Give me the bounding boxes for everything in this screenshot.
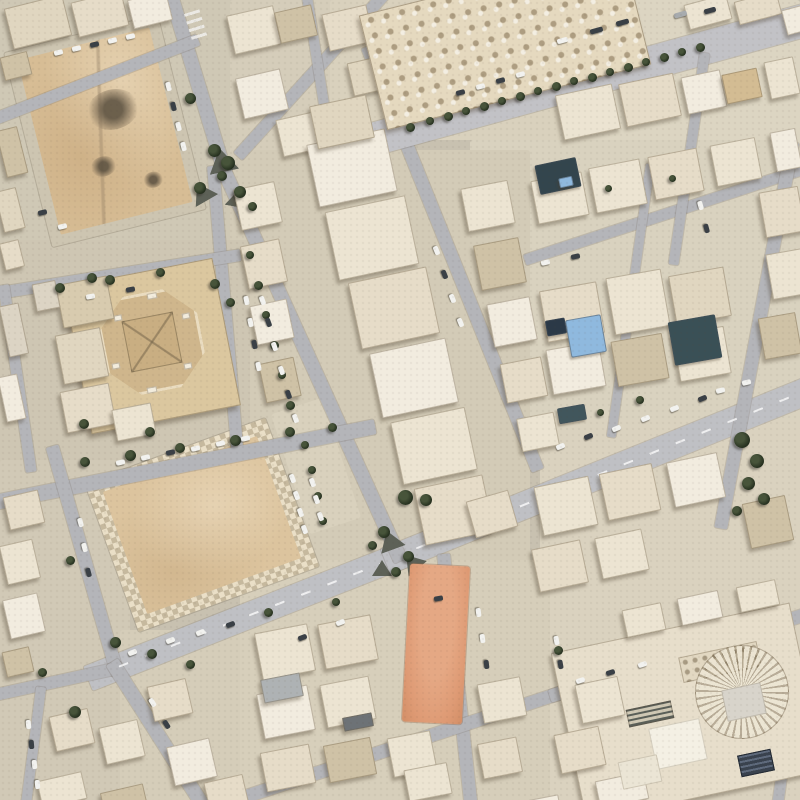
- tree: [248, 202, 257, 211]
- tree: [732, 506, 742, 516]
- tree: [642, 58, 650, 66]
- tree: [145, 427, 155, 437]
- tree: [734, 432, 750, 448]
- tree: [588, 73, 597, 82]
- tree: [156, 268, 165, 277]
- tree: [79, 419, 89, 429]
- tree: [554, 646, 563, 655]
- tree: [210, 279, 220, 289]
- building: [758, 312, 800, 360]
- tree: [55, 283, 65, 293]
- building: [605, 269, 670, 336]
- tree: [185, 93, 196, 104]
- tree: [147, 649, 157, 659]
- car: [190, 445, 200, 452]
- disturbed-soil-patch: [142, 170, 165, 190]
- tree: [480, 102, 489, 111]
- tree: [226, 298, 235, 307]
- car: [570, 253, 580, 260]
- car: [25, 719, 31, 728]
- tree: [87, 273, 97, 283]
- building: [680, 69, 727, 114]
- tree: [678, 48, 686, 56]
- tree: [308, 466, 316, 474]
- building: [55, 327, 110, 385]
- building: [758, 186, 800, 238]
- tree: [552, 82, 561, 91]
- tree: [328, 423, 337, 432]
- building: [473, 237, 527, 291]
- car: [483, 659, 489, 669]
- tree: [597, 409, 604, 416]
- tree: [286, 401, 295, 410]
- car: [255, 361, 262, 371]
- car: [215, 440, 225, 447]
- tree: [669, 175, 676, 182]
- tree: [758, 493, 770, 505]
- building: [477, 676, 528, 724]
- tree: [105, 275, 115, 285]
- tree: [391, 567, 401, 577]
- disturbed-soil-patch: [83, 84, 143, 135]
- tree: [208, 144, 221, 157]
- tree: [254, 281, 263, 290]
- building: [610, 333, 669, 387]
- car: [34, 779, 40, 788]
- tree: [606, 68, 614, 76]
- building: [709, 137, 762, 187]
- car: [251, 339, 258, 349]
- tree: [186, 660, 195, 669]
- swimming-pool: [668, 314, 723, 366]
- tree: [301, 441, 309, 449]
- tree: [125, 450, 136, 461]
- tree: [217, 171, 227, 181]
- tree: [742, 477, 755, 490]
- tree: [660, 53, 669, 62]
- building: [647, 148, 704, 201]
- building: [477, 737, 523, 780]
- car: [433, 595, 443, 601]
- tree: [110, 637, 121, 648]
- tree: [285, 427, 295, 437]
- satellite-map-view: [0, 0, 800, 800]
- tree: [66, 556, 75, 565]
- building: [516, 412, 560, 453]
- tree: [624, 63, 633, 72]
- tree: [175, 443, 185, 453]
- tree: [534, 87, 542, 95]
- car: [479, 633, 485, 643]
- tree: [246, 251, 254, 259]
- tree: [605, 185, 612, 192]
- tree: [221, 156, 235, 170]
- swimming-pool: [565, 314, 607, 358]
- tree: [750, 454, 764, 468]
- car: [540, 259, 550, 266]
- tree: [516, 92, 525, 101]
- tree: [194, 182, 206, 194]
- car: [140, 454, 150, 461]
- tree: [80, 457, 90, 467]
- tree: [420, 494, 432, 506]
- car: [553, 635, 559, 645]
- tree: [406, 123, 415, 132]
- tree: [69, 706, 81, 718]
- car: [243, 295, 250, 305]
- tree: [368, 541, 377, 550]
- building: [486, 296, 538, 348]
- tree: [230, 435, 241, 446]
- building: [249, 298, 294, 345]
- mosque-inner-roof: [122, 312, 183, 373]
- orange-dirt-lot: [402, 564, 470, 725]
- car: [247, 317, 254, 327]
- car: [475, 607, 481, 617]
- tree: [570, 77, 578, 85]
- tree: [444, 112, 453, 121]
- tree: [332, 598, 340, 606]
- car: [557, 659, 563, 669]
- car: [115, 459, 125, 466]
- tree: [426, 117, 434, 125]
- disturbed-soil-patch: [88, 154, 118, 180]
- tree: [403, 551, 414, 562]
- tree: [264, 608, 273, 617]
- building: [500, 356, 549, 403]
- car: [31, 759, 37, 768]
- swimming-pool: [545, 317, 567, 336]
- car: [28, 739, 34, 748]
- car: [165, 449, 175, 456]
- tree: [696, 43, 705, 52]
- building: [588, 158, 648, 213]
- car: [85, 293, 95, 299]
- tree: [462, 107, 470, 115]
- tree: [498, 97, 506, 105]
- building: [254, 623, 316, 680]
- car: [125, 286, 135, 292]
- tree: [398, 490, 413, 505]
- tree: [38, 668, 47, 677]
- tree: [378, 526, 390, 538]
- tree: [636, 396, 644, 404]
- tree: [234, 186, 246, 198]
- car: [240, 435, 250, 442]
- building: [460, 180, 516, 232]
